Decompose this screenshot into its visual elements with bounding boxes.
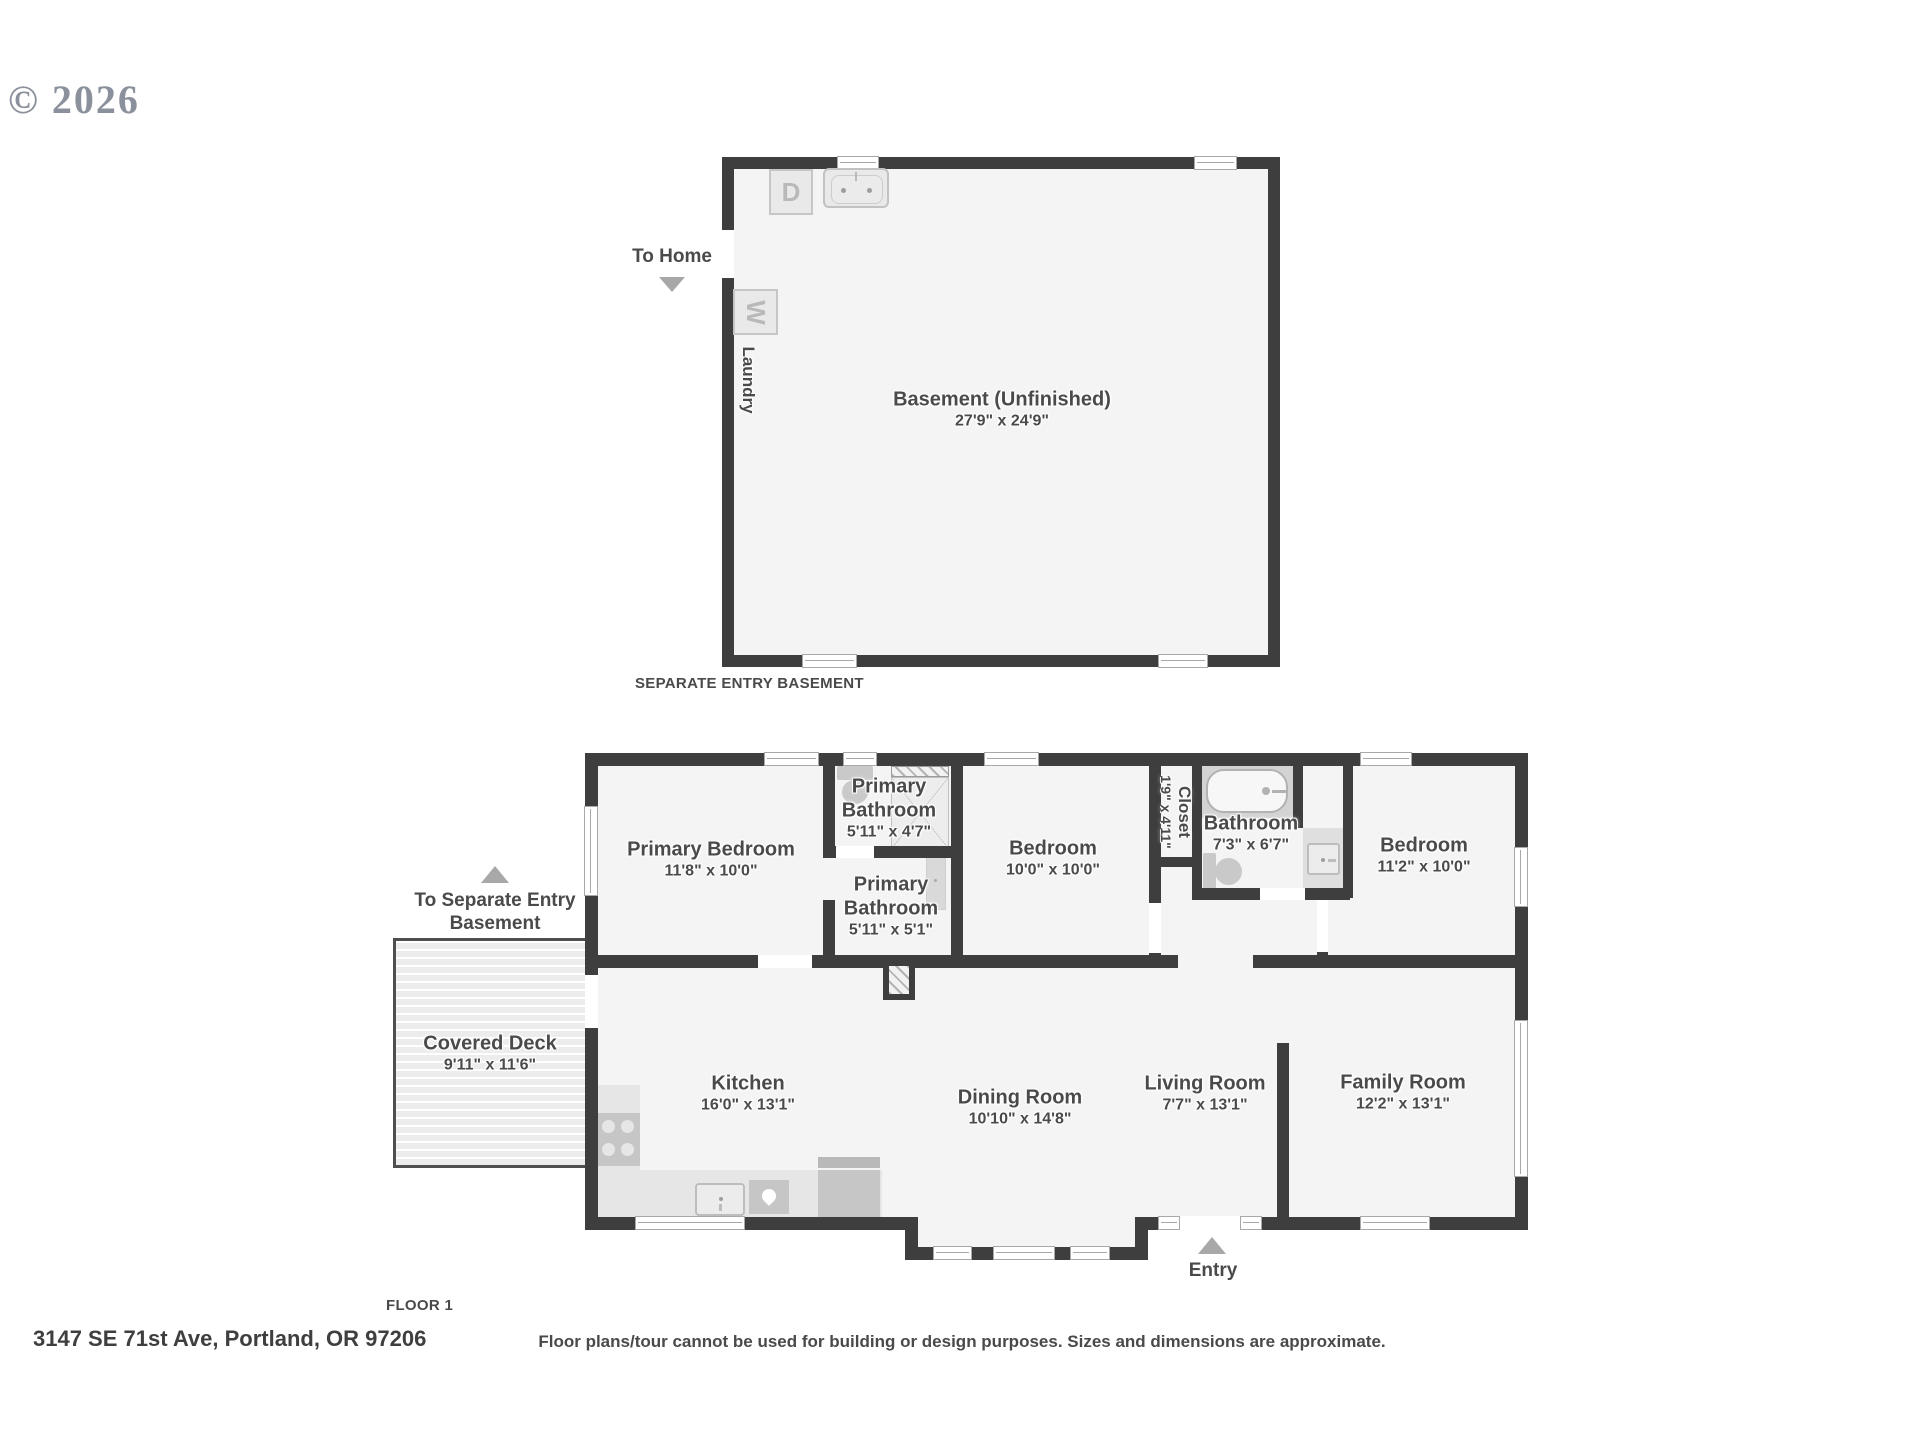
window xyxy=(1360,1216,1430,1230)
room-label-primary-bedroom: Primary Bedroom 11'8" x 10'0" xyxy=(627,838,795,881)
burner xyxy=(621,1120,634,1133)
window xyxy=(1194,156,1237,170)
sink-drain xyxy=(1321,858,1325,862)
window xyxy=(1514,847,1528,907)
floor1-caption: FLOOR 1 xyxy=(386,1297,453,1314)
sink-knob xyxy=(841,188,846,193)
window xyxy=(764,752,819,766)
entry-door-opening xyxy=(1180,1216,1240,1230)
kitchen-sink xyxy=(695,1183,745,1216)
room-label-living-room: Living Room 7'7" x 13'1" xyxy=(1144,1072,1265,1115)
door-opening xyxy=(1149,903,1161,953)
bathroom-sink xyxy=(1307,843,1340,875)
room-dims: 27'9" x 24'9" xyxy=(893,412,1111,431)
refrigerator xyxy=(818,1170,880,1217)
room-label-kitchen: Kitchen 16'0" x 13'1" xyxy=(701,1072,795,1115)
sink-drain xyxy=(719,1197,723,1201)
door-opening xyxy=(836,846,874,858)
room-label-bathroom: Bathroom 7'3" x 6'7" xyxy=(1204,812,1298,855)
sink-faucet xyxy=(855,172,857,181)
bathtub-surround xyxy=(1202,765,1293,818)
wall xyxy=(1277,1043,1289,1230)
wall xyxy=(1268,157,1280,667)
window xyxy=(584,806,598,896)
to-home-arrow-icon xyxy=(659,277,685,292)
room-label-covered-deck: Covered Deck 9'11" x 11'6" xyxy=(423,1032,556,1075)
window xyxy=(1360,752,1412,766)
sink-faucet xyxy=(1328,859,1336,862)
dryer-appliance: D xyxy=(769,169,813,215)
door-opening xyxy=(1317,900,1328,952)
room-label-primary-bathroom-upper: Primary Bathroom 5'11" x 4'7" xyxy=(824,775,954,842)
burner xyxy=(621,1143,634,1156)
basement-room-label: Basement (Unfinished) 27'9" x 24'9" xyxy=(893,388,1111,431)
wall xyxy=(1253,955,1516,968)
window xyxy=(1240,1216,1262,1230)
window xyxy=(1158,1216,1180,1230)
basement-caption: SEPARATE ENTRY BASEMENT xyxy=(635,675,864,692)
to-home-label: To Home xyxy=(632,246,712,268)
deck-door-opening xyxy=(585,975,598,1028)
room-label-family-room: Family Room 12'2" x 13'1" xyxy=(1340,1071,1466,1114)
laundry-sink-basin xyxy=(831,175,883,204)
floor-plan-page: { "copyright": "© 2026", "basement": { "… xyxy=(0,0,1920,1440)
dryer-label: D xyxy=(782,177,801,208)
sink-knob xyxy=(867,188,872,193)
wall xyxy=(1343,753,1353,898)
sink-faucet xyxy=(719,1204,722,1211)
window xyxy=(984,752,1039,766)
chimney xyxy=(883,960,915,1000)
door-opening xyxy=(758,955,812,968)
to-basement-arrow-icon xyxy=(481,866,509,883)
room-label-closet: Closet 1'9" x 4'11" xyxy=(1158,775,1194,849)
window xyxy=(1070,1246,1110,1260)
room-label-bedroom-right: Bedroom 11'2" x 10'0" xyxy=(1377,834,1470,877)
entry-arrow-icon xyxy=(1198,1237,1226,1254)
wall xyxy=(585,955,758,968)
room-name: Basement (Unfinished) xyxy=(893,388,1111,412)
laundry-area-label: Laundry xyxy=(738,346,758,413)
toilet-bowl xyxy=(1215,858,1242,885)
room-label-bedroom-middle: Bedroom 10'0" x 10'0" xyxy=(1006,837,1100,880)
window xyxy=(1514,1020,1528,1177)
washer-label: W xyxy=(740,300,771,325)
entry-label: Entry xyxy=(1189,1260,1238,1282)
door-opening xyxy=(1260,888,1305,900)
laundry-sink xyxy=(823,168,889,208)
refrigerator-top xyxy=(818,1157,880,1168)
disclaimer: Floor plans/tour cannot be used for buil… xyxy=(538,1332,1385,1352)
basement-entry-door-opening xyxy=(722,230,734,278)
tub-faucet xyxy=(1272,790,1286,793)
to-basement-label: To Separate Entry Basement xyxy=(395,889,595,935)
burner xyxy=(602,1143,615,1156)
stove xyxy=(596,1113,640,1166)
window xyxy=(1158,654,1208,668)
window xyxy=(933,1246,972,1260)
window xyxy=(635,1216,745,1230)
copyright-watermark: © 2026 xyxy=(8,76,140,123)
window xyxy=(843,752,877,766)
window xyxy=(993,1246,1055,1260)
water-drop-icon xyxy=(759,1186,779,1206)
wall xyxy=(812,955,1178,968)
washer-appliance: W xyxy=(733,289,778,335)
room-label-dining-room: Dining Room 10'10" x 14'8" xyxy=(958,1086,1082,1129)
address: 3147 SE 71st Ave, Portland, OR 97206 xyxy=(33,1326,426,1352)
burner xyxy=(602,1120,615,1133)
tub-drain xyxy=(1262,787,1270,795)
window xyxy=(802,654,857,668)
prep-sink xyxy=(749,1180,789,1214)
floor1-floor xyxy=(585,753,1528,1230)
room-label-primary-bathroom-lower: Primary Bathroom 5'11" x 5'1" xyxy=(826,873,956,940)
